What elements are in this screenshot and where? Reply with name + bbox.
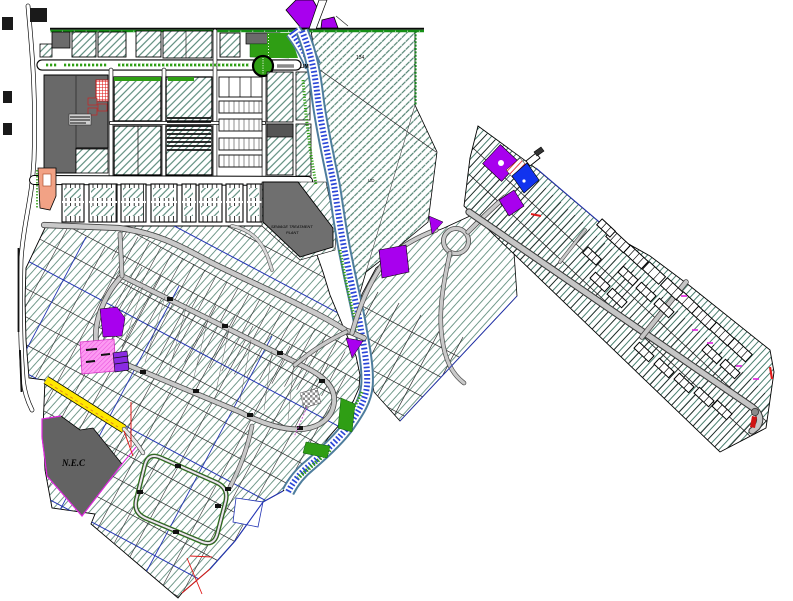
svg-text:UD: UD — [368, 178, 375, 183]
svg-text:PLANT: PLANT — [286, 230, 299, 235]
svg-text:LIM: LIM — [300, 64, 309, 70]
svg-text:134: 134 — [356, 55, 365, 61]
svg-text:N.E.C: N.E.C — [61, 458, 86, 468]
svg-text:SEWAGE TREATMENT: SEWAGE TREATMENT — [271, 224, 313, 229]
